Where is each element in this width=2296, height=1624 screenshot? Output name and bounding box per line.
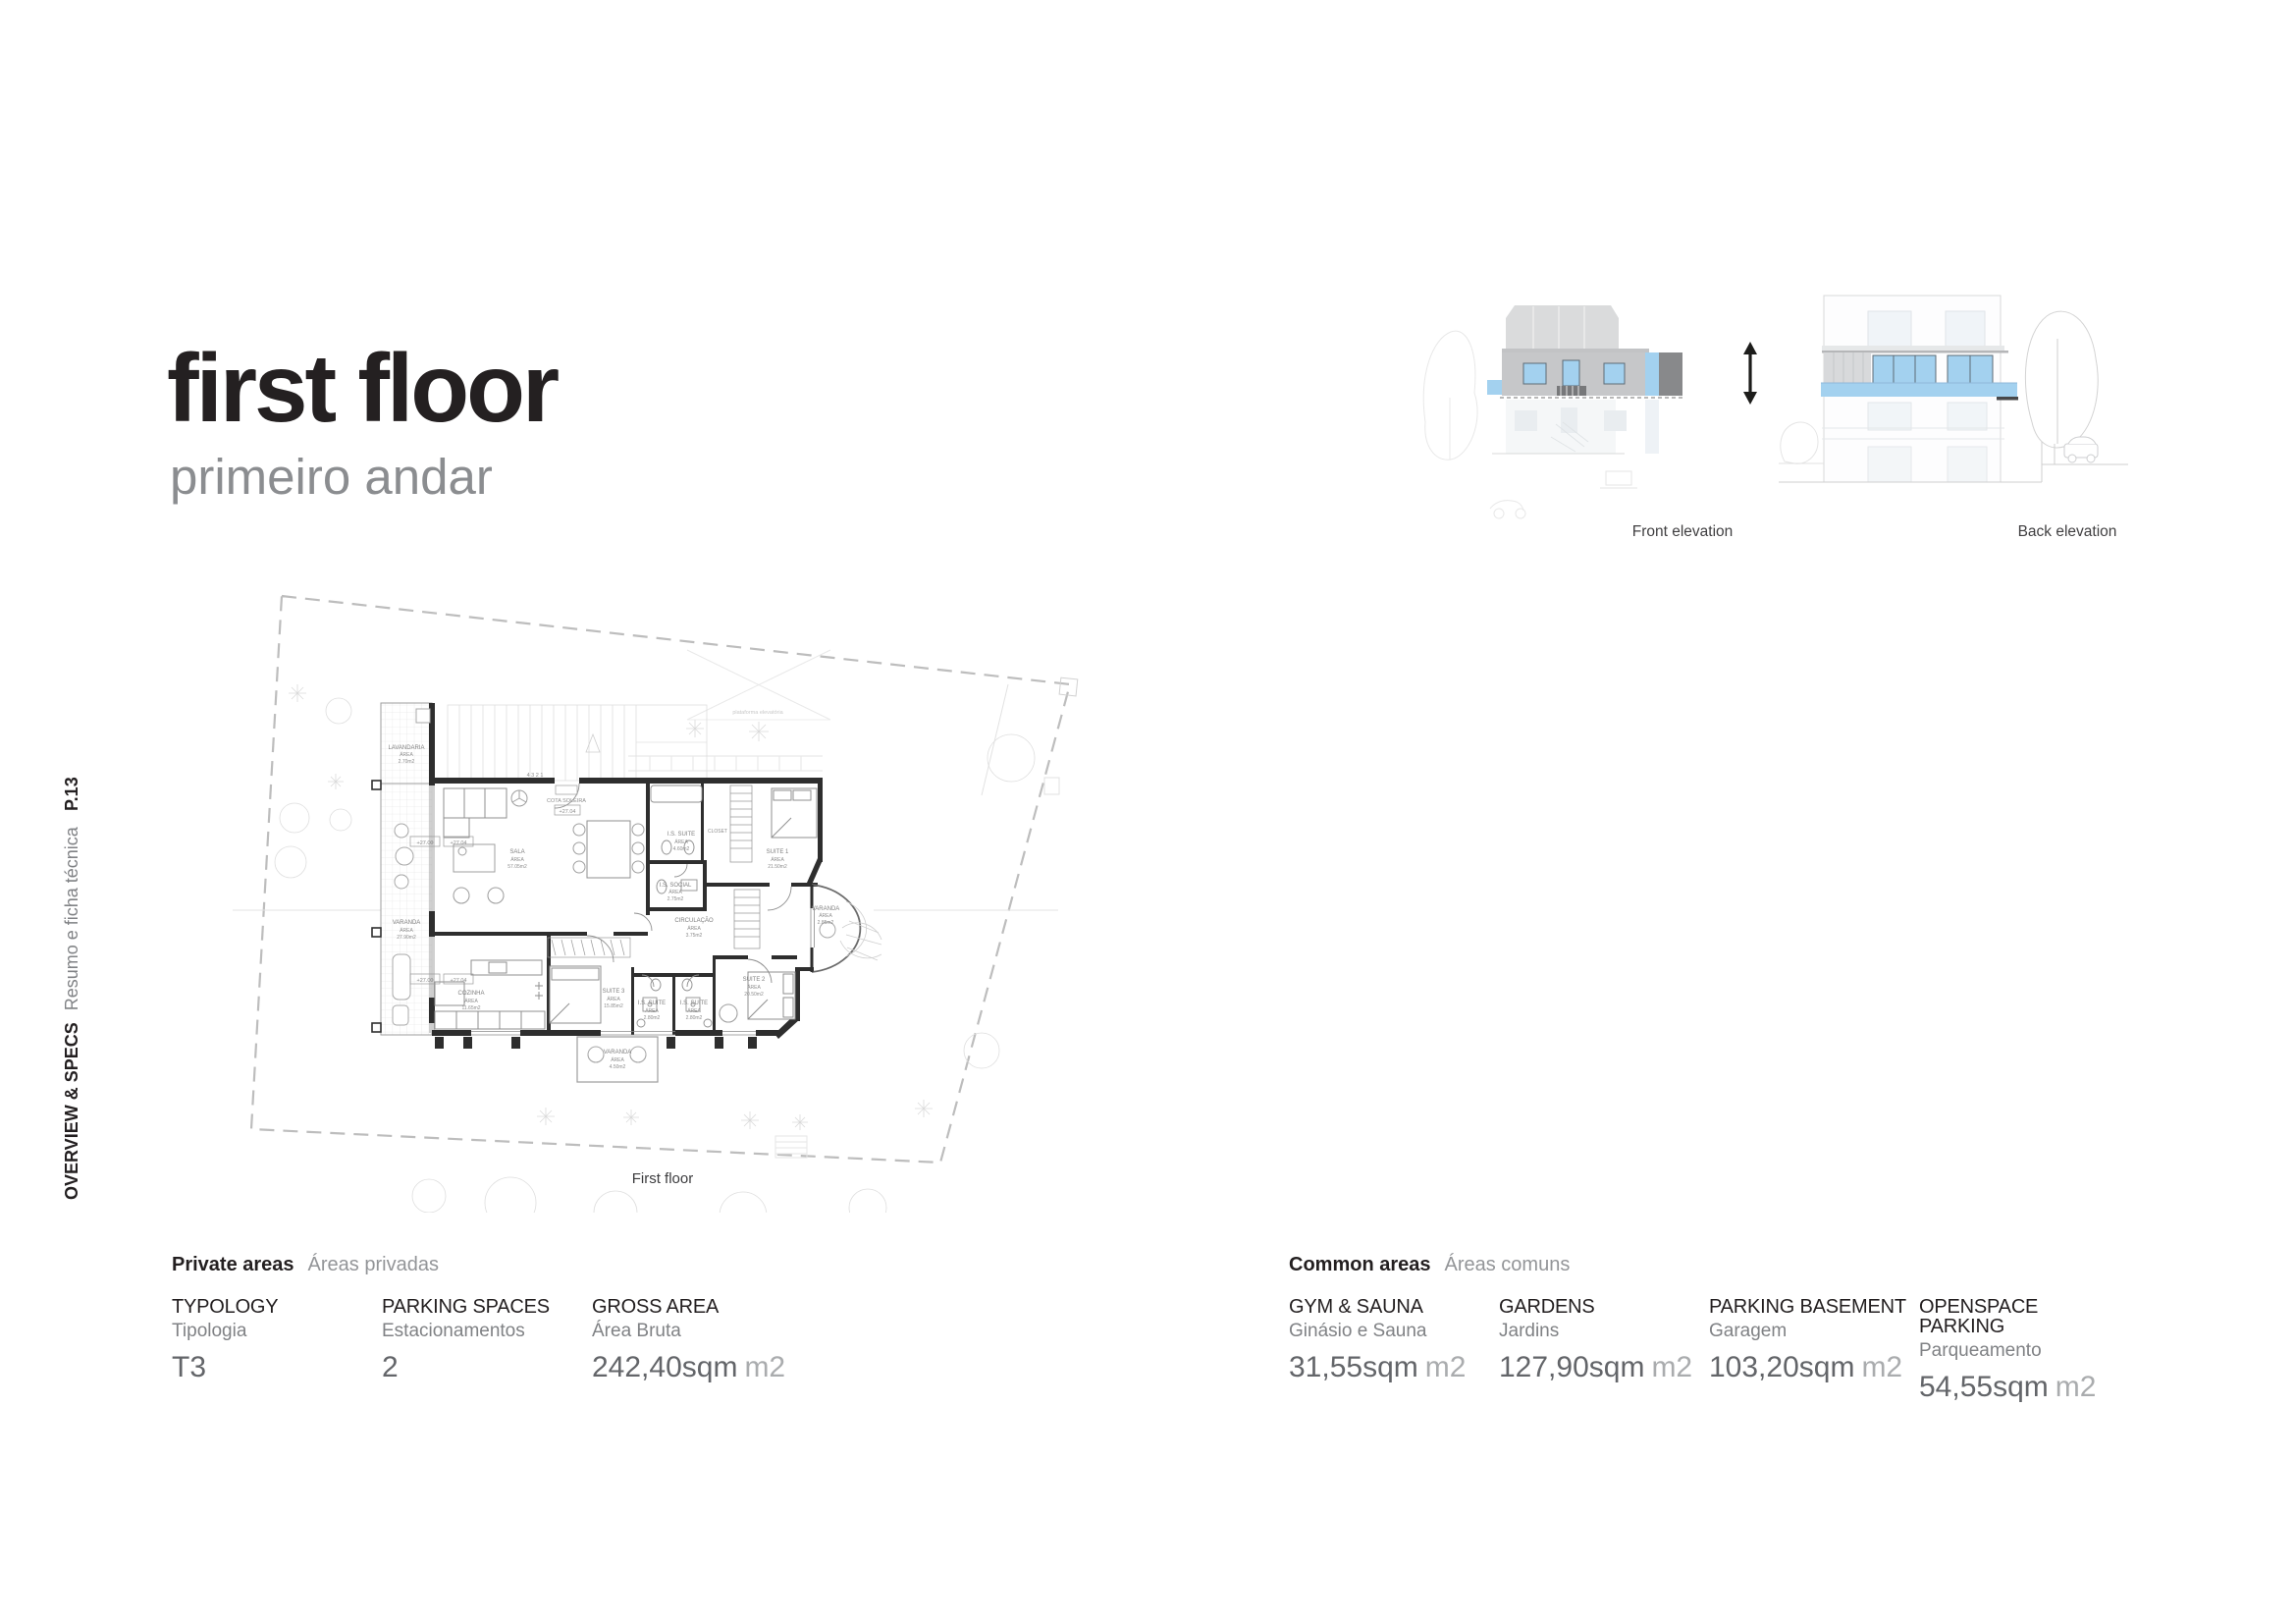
svg-text:VARANDA: VARANDA: [604, 1050, 632, 1056]
svg-text:57.05m2: 57.05m2: [507, 864, 527, 870]
svg-text:2.85m2: 2.85m2: [818, 920, 834, 926]
svg-text:ÁREA: ÁREA: [645, 1007, 659, 1014]
svg-text:ÁREA: ÁREA: [510, 856, 524, 863]
svg-text:CLOSET: CLOSET: [708, 829, 727, 835]
svg-text:20.50m2: 20.50m2: [744, 992, 764, 998]
svg-text:ÁREA: ÁREA: [819, 912, 832, 919]
floor-plan: plataforma elevatória 4 3 2 1 LAVANDARIA…: [221, 545, 1153, 1213]
svg-text:ÁREA: ÁREA: [687, 925, 701, 932]
sidebar-subtitle: Resumo e ficha técnica: [62, 827, 81, 1010]
svg-text:ÁREA: ÁREA: [464, 998, 478, 1004]
curved-balcony: [812, 885, 881, 972]
front-elevation-drawing: [1414, 275, 1757, 550]
spec-gym-sauna: GYM & SAUNA Ginásio e Sauna 31,55sqmm2: [1289, 1297, 1495, 1382]
svg-text:27.90m2: 27.90m2: [397, 935, 416, 941]
svg-text:2.80m2: 2.80m2: [686, 1015, 703, 1021]
brochure-page: { "page": { "page_number": "P.13", "side…: [0, 0, 2296, 1624]
svg-text:SALA: SALA: [509, 849, 524, 855]
front-foreground: [1490, 471, 1637, 518]
svg-text:2.70m2: 2.70m2: [399, 759, 415, 765]
svg-text:LAVANDARIA: LAVANDARIA: [388, 745, 424, 751]
spec-typology: TYPOLOGY Tipologia T3: [172, 1297, 378, 1382]
svg-text:ÁREA: ÁREA: [668, 889, 682, 895]
vertical-double-arrow-icon: [1739, 342, 1761, 405]
property-boundary: [251, 596, 1078, 1163]
sidebar-title: OVERVIEW & SPECS: [62, 1022, 81, 1200]
svg-text:+27.00: +27.00: [417, 978, 434, 984]
svg-text:2.75m2: 2.75m2: [667, 896, 684, 902]
svg-text:ÁREA: ÁREA: [400, 927, 413, 934]
svg-text:+27.04: +27.04: [451, 840, 467, 846]
spec-openspace-parking: OPENSPACE PARKING Parqueamento 54,55sqmm…: [1919, 1297, 2125, 1402]
svg-text:ÁREA: ÁREA: [771, 856, 784, 863]
svg-text:I.S. SOCIAL: I.S. SOCIAL: [660, 883, 692, 889]
svg-text:ÁREA: ÁREA: [607, 996, 620, 1002]
svg-text:ÁREA: ÁREA: [400, 751, 413, 758]
svg-text:ÁREA: ÁREA: [611, 1056, 624, 1063]
svg-text:CIRCULAÇÃO: CIRCULAÇÃO: [674, 917, 714, 924]
page-subtitle: primeiro andar: [170, 452, 493, 502]
cota-label: COTA SOLEIRA: [547, 798, 586, 804]
svg-text:+27.00: +27.00: [417, 840, 434, 846]
page-number-text: P.13: [62, 777, 82, 811]
front-tree: [1423, 331, 1477, 460]
back-elevation-label: Back elevation: [1969, 523, 2165, 541]
svg-text:ÁREA: ÁREA: [747, 984, 761, 991]
svg-text:15.85m2: 15.85m2: [604, 1003, 623, 1009]
spec-gardens: GARDENS Jardins 127,90sqmm2: [1499, 1297, 1705, 1382]
svg-text:SUITE 3: SUITE 3: [603, 989, 625, 995]
svg-text:4.50m2: 4.50m2: [610, 1064, 626, 1070]
common-areas-heading: Common areasÁreas comuns: [1289, 1255, 1570, 1274]
svg-text:4.60m2: 4.60m2: [673, 846, 690, 852]
svg-text:SUITE 1: SUITE 1: [767, 849, 789, 855]
svg-text:I.S. SUITE: I.S. SUITE: [680, 1001, 708, 1006]
plan-caption: First floor: [564, 1170, 761, 1187]
platform-note: plataforma elevatória: [732, 710, 783, 716]
svg-text:I.S. SUITE: I.S. SUITE: [667, 832, 695, 838]
svg-text:11.65m2: 11.65m2: [461, 1005, 480, 1011]
page-title: first floor: [167, 340, 557, 436]
spec-parking-spaces: PARKING SPACES Estacionamentos 2: [382, 1297, 588, 1382]
front-elevation-label: Front elevation: [1584, 523, 1781, 541]
svg-text:+27.04: +27.04: [451, 978, 467, 984]
svg-text:SUITE 2: SUITE 2: [743, 977, 766, 983]
private-areas-heading: Private areasÁreas privadas: [172, 1255, 439, 1274]
back-elevation-drawing: [1777, 275, 2150, 560]
svg-text:VARANDA: VARANDA: [393, 920, 421, 926]
svg-text:ÁREA: ÁREA: [674, 839, 688, 845]
svg-text:3.75m2: 3.75m2: [686, 933, 703, 939]
stairwell: [448, 705, 707, 781]
sidebar-rotated-line: OVERVIEW & SPECSResumo e ficha técnica: [62, 827, 82, 1200]
svg-text:ÁREA: ÁREA: [687, 1007, 701, 1014]
stair-numbers: 4 3 2 1: [527, 773, 544, 779]
svg-text:2.80m2: 2.80m2: [644, 1015, 661, 1021]
svg-text:COZINHA: COZINHA: [458, 991, 485, 997]
svg-text:21.50m2: 21.50m2: [768, 864, 787, 870]
back-bush: [1779, 422, 1824, 463]
svg-text:I.S. SUITE: I.S. SUITE: [638, 1001, 666, 1006]
spec-gross-area: GROSS AREA Área Bruta 242,40sqmm2: [592, 1297, 798, 1382]
front-building: [1487, 305, 1684, 454]
svg-text:VARANDA: VARANDA: [812, 906, 840, 912]
cota-value: +27.04: [560, 809, 576, 815]
spec-parking-basement: PARKING BASEMENT Garagem 103,20sqmm2: [1709, 1297, 1915, 1382]
